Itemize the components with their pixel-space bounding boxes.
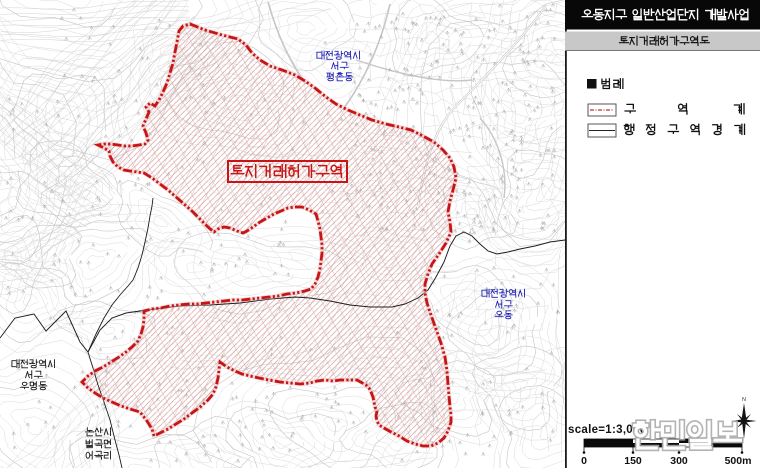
svg-text:N: N bbox=[742, 397, 746, 403]
svg-text:300: 300 bbox=[670, 455, 688, 467]
svg-text:500m: 500m bbox=[725, 455, 752, 467]
svg-text:150: 150 bbox=[624, 455, 642, 467]
svg-text:0: 0 bbox=[581, 455, 587, 467]
